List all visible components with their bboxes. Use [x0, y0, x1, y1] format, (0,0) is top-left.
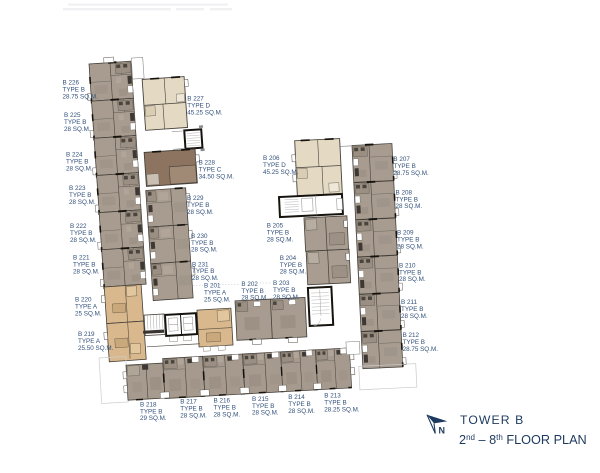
svg-text:28 SQ.M.: 28 SQ.M.: [70, 237, 97, 244]
svg-text:28 SQ.M.: 28 SQ.M.: [73, 268, 100, 275]
svg-text:28 SQ.M.: 28 SQ.M.: [241, 295, 268, 302]
svg-text:28 SQ.M.: 28 SQ.M.: [273, 294, 300, 301]
svg-text:28 SQ.M.: 28 SQ.M.: [64, 126, 91, 133]
svg-text:28 SQ.M.: 28 SQ.M.: [191, 247, 218, 254]
svg-text:45.25 SQ.M.: 45.25 SQ.M.: [187, 109, 223, 116]
svg-text:28 SQ.M.: 28 SQ.M.: [280, 269, 307, 276]
svg-text:28.75 SQ.M.: 28.75 SQ.M.: [403, 346, 439, 353]
svg-text:28 SQ.M.: 28 SQ.M.: [214, 411, 241, 418]
svg-text:28 SQ.M.: 28 SQ.M.: [397, 243, 424, 250]
svg-text:25.50 SQ.M.: 25.50 SQ.M.: [78, 345, 114, 352]
svg-text:28.25 SQ.M.: 28.25 SQ.M.: [324, 406, 360, 413]
svg-text:28 SQ.M.: 28 SQ.M.: [187, 209, 214, 216]
svg-text:28 SQ.M.: 28 SQ.M.: [252, 410, 279, 417]
svg-text:28 SQ.M.: 28 SQ.M.: [396, 203, 423, 210]
svg-text:45.25 SQ.M.: 45.25 SQ.M.: [263, 169, 299, 176]
svg-text:2nd – 8th FLOOR PLAN: 2nd – 8th FLOOR PLAN: [459, 433, 587, 447]
svg-text:N: N: [439, 426, 446, 436]
svg-text:28 SQ.M.: 28 SQ.M.: [399, 276, 426, 283]
svg-text:28 SQ.M.: 28 SQ.M.: [288, 408, 315, 415]
svg-text:28 SQ.M.: 28 SQ.M.: [192, 275, 219, 282]
svg-text:28 SQ.M.: 28 SQ.M.: [69, 199, 96, 206]
svg-text:28 SQ.M.: 28 SQ.M.: [66, 165, 93, 172]
svg-text:34.50 SQ.M.: 34.50 SQ.M.: [199, 173, 235, 180]
svg-text:28 SQ.M.: 28 SQ.M.: [180, 412, 207, 419]
svg-text:29 SQ.M.: 29 SQ.M.: [140, 415, 167, 422]
svg-text:28 SQ.M.: 28 SQ.M.: [401, 313, 428, 320]
svg-text:28.75 SQ.M.: 28.75 SQ.M.: [393, 170, 429, 177]
svg-text:25 SQ.M.: 25 SQ.M.: [204, 296, 231, 303]
svg-text:28 SQ.M.: 28 SQ.M.: [267, 236, 294, 243]
svg-text:28.75 SQ.M.: 28.75 SQ.M.: [63, 93, 99, 100]
svg-text:TOWER B: TOWER B: [460, 413, 524, 427]
svg-text:25 SQ.M.: 25 SQ.M.: [75, 310, 102, 317]
